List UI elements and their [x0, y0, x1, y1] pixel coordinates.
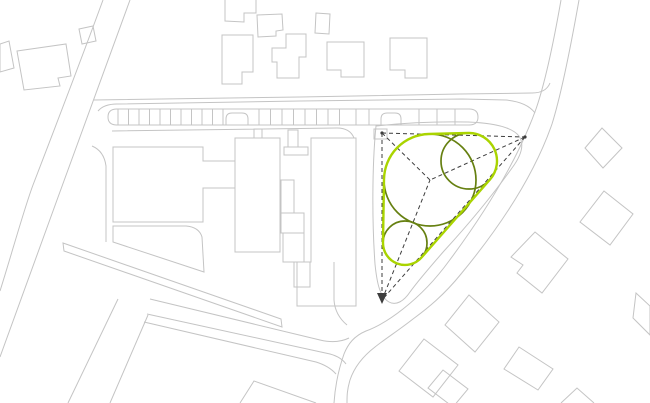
house-top-4: [222, 35, 253, 84]
guide-spoke-s: [382, 180, 430, 300]
concept-markers: [377, 131, 527, 304]
vertex-dot-nw: [380, 131, 383, 134]
site-plan-canvas: [0, 0, 650, 403]
vertex-dot-ne: [523, 135, 526, 138]
road-ne-west-edge: [334, 0, 561, 403]
building-center-shaft-upper: [281, 180, 294, 213]
house-se-2: [504, 347, 553, 390]
house-nw-large: [17, 44, 71, 90]
building-center-foot: [294, 262, 310, 287]
building-entry-flare: [284, 147, 308, 155]
house-top-2: [257, 14, 283, 37]
house-top-7: [390, 38, 427, 78]
house-ne-1: [585, 128, 622, 168]
building-entry-column: [288, 130, 298, 147]
parking-island-east: [381, 113, 401, 125]
site-plan-svg: [0, 0, 650, 403]
building-center-shaft-bump: [281, 213, 304, 233]
main-building-complex: [113, 129, 356, 306]
building-center-block: [235, 138, 280, 252]
path-west-of-building: [92, 146, 106, 242]
building-west-block: [113, 147, 235, 222]
building-east-slab: [297, 138, 356, 306]
green-hull: [383, 133, 497, 265]
parcel-edge-east: [110, 315, 148, 403]
path-east-of-building: [334, 262, 347, 325]
house-ne-2: [580, 191, 633, 245]
vertex-arrow-s: [377, 293, 387, 304]
house-west-edge-partial: [0, 41, 14, 72]
parking-island-west: [226, 113, 248, 125]
parking-stall-ticks: [118, 109, 455, 125]
house-bottom-edge-partial: [561, 388, 594, 403]
green-space-hull-outline: [383, 133, 497, 265]
house-top-3: [315, 13, 330, 34]
house-se-1: [511, 232, 568, 293]
median-strip-mid: [63, 243, 282, 327]
roads-and-parcels: [0, 0, 579, 403]
house-top-6: [327, 42, 364, 77]
building-entry-stub: [254, 129, 262, 138]
parcel-edge-west: [68, 299, 118, 403]
site-edge-below-parking: [112, 128, 354, 138]
road-nw-east-edge: [0, 0, 130, 357]
road-ne-east-edge: [347, 0, 579, 403]
house-s-wing: [428, 370, 468, 403]
building-center-shaft-lower: [283, 233, 304, 262]
corner-lot-south: [240, 381, 316, 403]
strip-south-south-edge: [144, 322, 336, 374]
road-nw-west-edge: [0, 0, 103, 291]
house-top-5: [272, 34, 306, 78]
house-east-edge-partial: [633, 293, 650, 335]
road-south-band-north-edge: [150, 299, 349, 342]
road-top-north-edge: [94, 83, 550, 100]
house-se-3: [445, 295, 499, 352]
tree-canopies: [383, 133, 497, 265]
house-top-1: [225, 0, 256, 22]
